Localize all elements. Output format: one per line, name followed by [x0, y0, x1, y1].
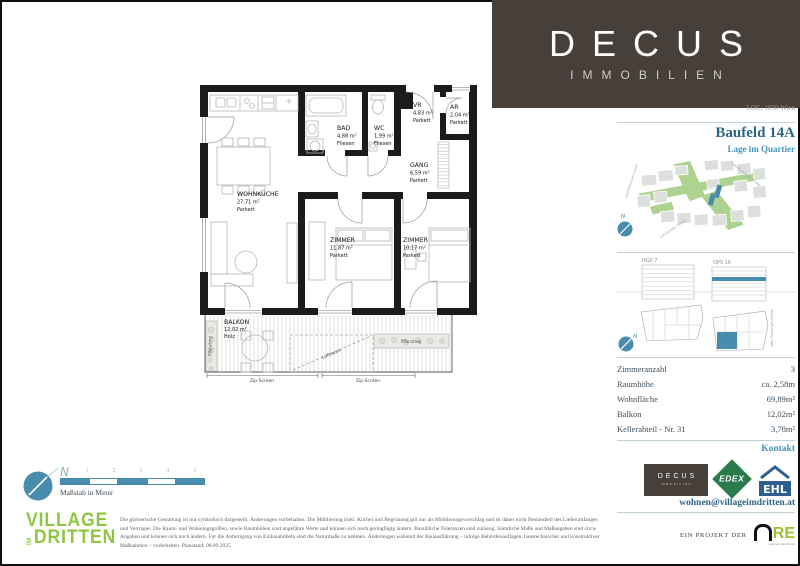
divider	[617, 440, 795, 441]
room-floor: Holz	[224, 334, 235, 340]
detail-label: Zimmeranzahl	[617, 362, 667, 377]
scale-caption: Maßstab in Meter	[60, 488, 113, 497]
edex-logo-text: EDEX	[719, 474, 744, 484]
map-compass: N	[618, 214, 633, 237]
decus-mini-logo: DECUS IMMOBILIEN	[644, 464, 708, 496]
divider	[617, 357, 795, 358]
pflanztrog-right-label: Pflanztrog	[401, 339, 422, 344]
room-floor: Parkett	[450, 120, 468, 126]
divider	[617, 122, 795, 123]
project-credit: EIN PROJEKT DER RE Austrian Real Estate	[617, 524, 795, 546]
room-label: BAD	[337, 125, 350, 132]
compass-n-label: N	[621, 214, 625, 220]
scale-tick: 2	[113, 468, 116, 474]
room-area: 27,71 m²	[237, 200, 260, 206]
divider	[617, 512, 795, 513]
street-label: Otto-Preminger-Straße	[770, 309, 774, 347]
zip-screen-brackets	[207, 373, 415, 378]
scale-tick: 3	[140, 468, 143, 474]
zip-screen-label-1: Zip-Screen	[250, 378, 274, 384]
disclaimer-text: Die gärtnerische Gestaltung ist nur symb…	[120, 516, 602, 551]
room-floor: Fliesen	[374, 141, 392, 147]
floor-plates	[641, 305, 768, 351]
quartier-map: Adolf-Blamauer-Gasse Otto-Preminger-Stra…	[613, 150, 798, 252]
sofa-area	[211, 222, 297, 286]
detail-label: Wohnfläche	[617, 392, 658, 407]
gang-wardrobe	[438, 142, 449, 188]
are-subtext: Austrian Real Estate	[769, 542, 795, 546]
building-sections: HGP 7 OPS 16 Otto-Preminger-Straße N	[613, 252, 798, 356]
room-floor: Parkett	[330, 253, 348, 259]
elevation-label: OPS 16	[713, 260, 731, 266]
room-area: 12,02 m²	[224, 327, 247, 333]
village-line2: DRITTEN	[34, 529, 116, 546]
room-label: ZIMMER	[330, 237, 356, 244]
detail-label: Kellerabteil - Nr. 31	[617, 422, 685, 437]
detail-label: Balkon	[617, 407, 642, 422]
detail-value: 12,02m²	[767, 407, 795, 422]
room-area: 4,88 m²	[337, 134, 357, 140]
apartment-details: Zimmeranzahl 3 Raumhöhe ca. 2,58m Wohnfl…	[617, 362, 795, 437]
kitchen-counter	[210, 95, 298, 111]
detail-value: 69,89m²	[767, 392, 795, 407]
scale-tick: 5	[194, 468, 197, 474]
table-row: Zimmeranzahl 3	[617, 362, 795, 377]
pflanztrog-left-label: Pflanztrog	[208, 335, 213, 356]
detail-value: 3	[791, 362, 795, 377]
highlighted-unit	[717, 332, 737, 349]
ehl-logo-text: EHL	[763, 483, 787, 496]
page-title: Baufeld 14A	[715, 125, 795, 142]
elevation-label: HGP 7	[642, 258, 657, 264]
floorplan-page: WOHNKÜCHE 27,71 m² Parkett BAD 4,88 m² F…	[0, 0, 800, 566]
partner-logos: DECUS IMMOBILIEN EDEX EHL	[640, 462, 795, 499]
scale-tick: 4	[167, 468, 170, 474]
contact-email[interactable]: wohnen@villageimdritten.at	[679, 498, 795, 508]
room-label: ZIMMER	[403, 237, 429, 244]
highlighted-floor	[712, 277, 766, 281]
decus-mini-word: DECUS	[644, 473, 708, 480]
room-label: VR	[413, 102, 422, 109]
dining-table	[217, 138, 270, 194]
decus-logo-subtitle: IMMOBILIEN	[492, 68, 800, 82]
room-floor: Parkett	[403, 253, 421, 259]
room-area: 2,04 m²	[450, 113, 470, 119]
scale-bar: 1 2 3 4 5	[60, 468, 200, 488]
detail-label: Raumhöhe	[617, 377, 654, 392]
detail-value: 3,78m²	[771, 422, 795, 437]
decus-logo: DECUS	[492, 26, 800, 62]
kontakt-heading: Kontakt	[761, 444, 795, 454]
room-floor: Fliesen	[337, 141, 355, 147]
room-area: 1,99 m²	[374, 134, 394, 140]
village-im: IM	[27, 537, 33, 545]
decus-mini-sub: IMMOBILIEN	[644, 482, 708, 486]
room-area: 4,83 m²	[413, 111, 433, 117]
room-floor: Parkett	[413, 118, 431, 124]
village-im-dritten-logo: VILLAGE IM DRITTEN	[26, 512, 123, 546]
room-label: AR	[450, 104, 459, 111]
detail-value: ca. 2,58m	[762, 377, 795, 392]
scale-bar-segments	[60, 478, 205, 485]
scale-tick: 1	[86, 468, 89, 474]
room-floor: Parkett	[410, 178, 428, 184]
are-logo: RE Austrian Real Estate	[754, 524, 795, 546]
room-label: BALKON	[224, 319, 250, 326]
ehl-logo: EHL	[757, 462, 793, 498]
zip-screen-label-2: Zip-Screen	[356, 378, 380, 384]
room-label: WC	[374, 125, 384, 132]
edex-logo: EDEX	[712, 459, 752, 499]
room-label: WOHNKÜCHE	[237, 189, 279, 198]
table-row: Wohnfläche 69,89m²	[617, 392, 795, 407]
room-area: 11,87 m²	[330, 246, 353, 252]
address-line: 3.OG, 1030 Wien	[746, 104, 795, 112]
room-area: 6,59 m²	[410, 171, 430, 177]
are-word: RE	[773, 526, 795, 541]
street-label: Adolf-Blamauer-Gasse	[624, 164, 639, 199]
room-floor: Parkett	[237, 207, 255, 213]
shaft	[394, 92, 413, 109]
sections-compass: N	[619, 334, 638, 352]
elevation-ops: OPS 16	[712, 260, 766, 301]
table-row: Kellerabteil - Nr. 31 3,78m²	[617, 422, 795, 437]
table-row: Balkon 12,02m²	[617, 407, 795, 422]
table-row: Raumhöhe ca. 2,58m	[617, 377, 795, 392]
decus-brand-box: DECUS IMMOBILIEN	[492, 0, 800, 108]
room-area: 10,17 m²	[403, 246, 426, 252]
room-label: GANG	[410, 162, 429, 169]
floorplan-drawing: WOHNKÜCHE 27,71 m² Parkett BAD 4,88 m² F…	[195, 80, 485, 390]
compass-n-label: N	[633, 334, 637, 340]
project-prefix: EIN PROJEKT DER	[680, 532, 747, 539]
are-arch-icon	[754, 524, 772, 541]
elevation-hgp: HGP 7	[642, 258, 694, 299]
